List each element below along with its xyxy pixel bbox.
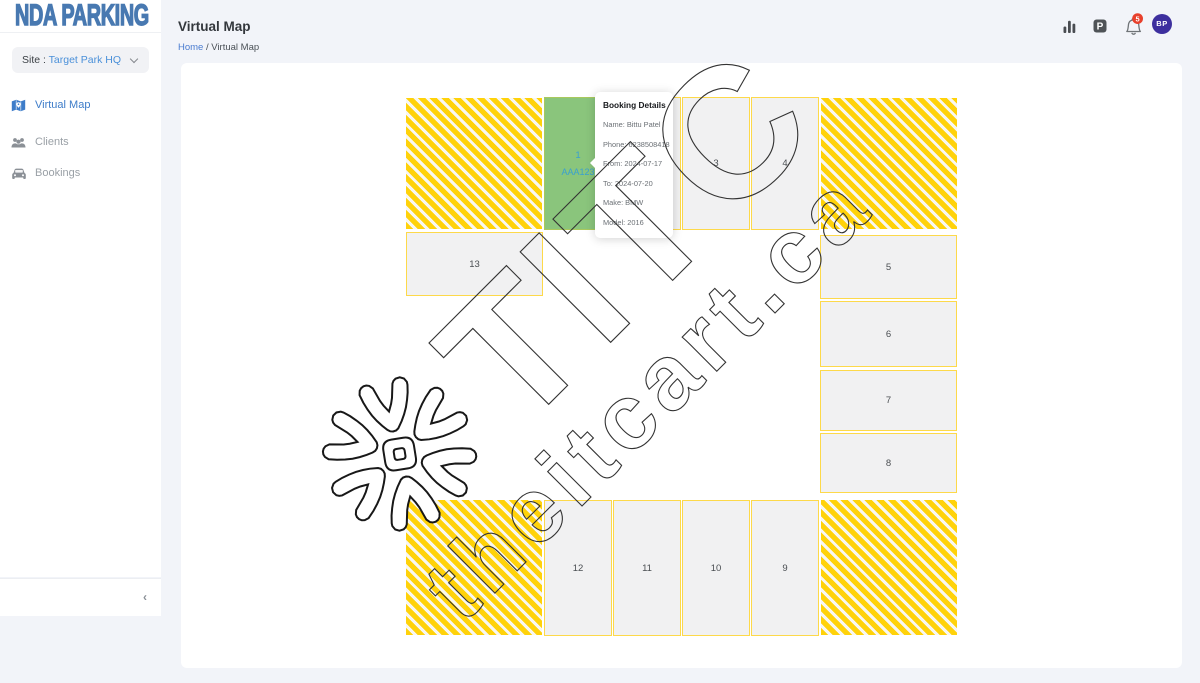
svg-text:5: 5 (1136, 14, 1140, 23)
svg-text:P: P (1097, 22, 1104, 33)
